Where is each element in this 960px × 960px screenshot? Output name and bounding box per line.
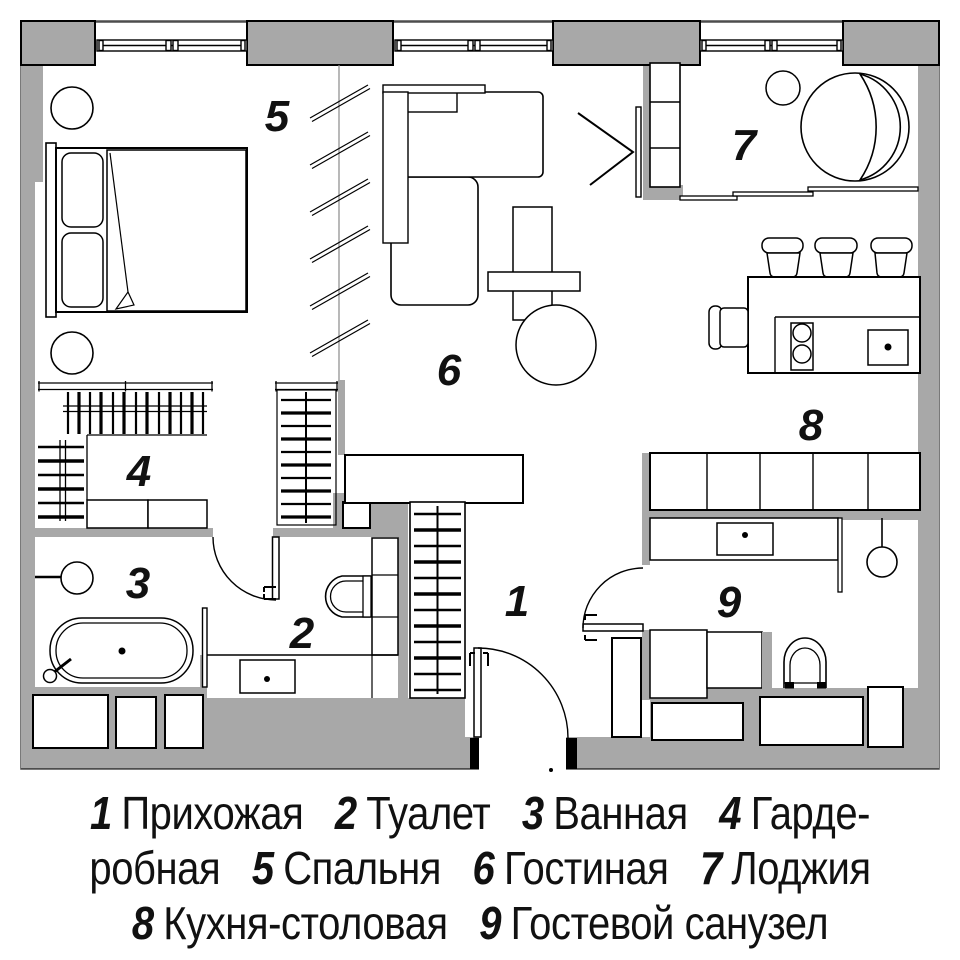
pier-middle-right [553,21,700,65]
bathroom [35,562,207,687]
room-label-4: 4 [126,447,151,496]
wardrobe-dresser-1 [87,500,148,528]
wall-entry-right [566,737,650,768]
legend-line-2: робная 5Спальня 6Гостиная 7Лоджия [62,841,897,896]
wall-kitchen-9-upper [642,453,650,565]
bathroom-door-leaf [273,537,280,599]
window-living [395,40,553,51]
round-basin [61,562,93,594]
bed-pillow-top [62,153,103,227]
bathtub-drain [119,648,126,655]
legend-room-name: Спальня [283,842,441,894]
bath-wc-partition [203,608,208,687]
legend-item: 1Прихожая [90,786,303,841]
partition-hatches [310,85,370,357]
vanity-drain [742,532,748,538]
kitchen-counter-row [650,453,920,510]
loggia-sliding-door [680,187,918,200]
bar-stool-back-1 [762,238,803,253]
wardrobe-clothes-left [38,447,84,517]
wall-bottom-under-wc [207,698,398,768]
window-bedroom [97,40,247,51]
legend-number: 9 [479,897,501,949]
wall-bottom-under-closet [398,698,465,768]
guest-bathroom [650,518,897,698]
wall-bath-top [21,528,213,537]
floor-plan-drawing: 1 2 3 4 5 6 7 8 9 [0,0,960,775]
bathroom-door-arc [213,537,276,600]
tv-panel [636,107,641,197]
floor-plan-page: { "colors": { "wall_gray": "#a8a8a8", "l… [0,0,960,960]
legend-item: 3Ванная [522,786,688,841]
duct-box [343,502,370,528]
legend-item: 6Гостиная [473,841,669,896]
storage-box-6 [868,687,903,747]
entry-jamb-left [470,738,479,769]
storage-box-3 [165,695,203,748]
bathtub-tap [44,670,57,683]
room-label-9: 9 [717,578,742,627]
wardrobe-clothes-top [68,392,203,434]
pier-corner-left [21,21,95,65]
pier-corner-right [843,21,939,65]
storage-box-4 [652,703,743,740]
closet-rack-hall [410,502,465,698]
pier-middle-left [247,21,393,65]
legend-room-name: Ванная [553,787,687,839]
sofa-arm [383,92,408,243]
legend-line-1: 1Прихожая 2Туалет 3Ванная 4Гарде- [62,786,897,841]
legend: 1Прихожая 2Туалет 3Ванная 4Гарде- робная… [0,786,960,951]
shower-head [867,547,897,577]
bed-headboard [46,143,56,317]
room-label-6: 6 [437,346,462,395]
storage-box-2 [116,697,156,748]
room-label-8: 8 [799,401,824,450]
bed-pillow-bottom [62,233,103,307]
wc-sink-drain [264,676,270,682]
wardrobe-dresser-2 [148,500,207,528]
room-label-2: 2 [289,609,315,658]
legend-item: 8Кухня-столовая [132,896,448,951]
bar-stool-3 [875,253,907,277]
storage-box-5 [760,697,863,745]
legend-room-name: Гостиная [504,842,668,894]
legend-room-name: Прихожая [121,787,303,839]
bar-stool-2 [820,253,853,277]
legend-item: 5Спальня [252,841,441,896]
guest-cabinet-2 [707,632,762,688]
room-label-3: 3 [126,559,150,608]
guest-door-arc [583,568,643,628]
wall-closet-left [398,502,408,698]
guest-wall-stub [762,632,772,690]
bedroom [46,65,339,380]
burner-1 [793,324,811,342]
legend-room-name: Лоджия [731,842,870,894]
console-table [345,455,523,503]
legend-room-name: робная [89,842,220,894]
legend-item: 7Лоджия [700,841,871,896]
tv-direction-arrow [578,113,633,185]
room-label-7: 7 [732,121,759,170]
kitchen-sink-drain [885,344,891,350]
bar-stool-1 [767,253,800,277]
legend-number: 5 [252,842,274,894]
bar-stool-back-3 [871,238,912,253]
entry-door-leaf [474,648,481,737]
guest-bathroom-door [583,568,643,640]
legend-number: 1 [90,787,112,839]
bathroom-door [213,537,279,600]
wall-bedroom-hall [338,380,345,455]
shower-partition [838,518,842,592]
wall-loggia-left [643,65,650,195]
legend-number: 8 [132,897,154,949]
loggia [650,63,918,200]
wall-wc-top [273,528,333,537]
wardrobe [38,381,213,528]
entry-jamb-right [566,738,577,769]
wall-kitchen-9-lower [642,630,650,700]
entry-door [470,648,568,738]
pouf [516,305,596,385]
loggia-shelf-unit [650,63,680,187]
entry-door-arc [478,648,568,738]
legend-number: 3 [522,787,544,839]
island-chair [720,308,748,347]
burner-2 [793,345,811,363]
legend-room-name: Гарде- [751,787,870,839]
legend-room-name: Гостевой санузел [511,897,829,949]
threshold-dot [549,768,553,772]
legend-number: 4 [719,787,741,839]
coffee-table-long [513,207,552,320]
hall-cabinet [612,638,641,737]
legend-item: 4Гарде- [719,786,870,841]
guest-cabinet-1 [650,630,707,698]
nightstand-top [51,87,93,129]
room-label-1: 1 [505,577,529,626]
kitchen [650,238,920,510]
legend-room-name: Туалет [366,787,490,839]
legend-room-name: Кухня-столовая [163,897,447,949]
legend-line-3: 8Кухня-столовая 9Гостевой санузел [62,896,897,951]
nightstand-bottom [51,332,93,374]
window-loggia [700,40,843,51]
legend-number: 6 [473,842,495,894]
vanity-sink [717,523,773,555]
living-room [345,85,641,503]
entry-opening [470,736,577,772]
guest-door-leaf [583,624,643,631]
legend-item: 2Туалет [335,786,490,841]
bar-stool-back-2 [815,238,857,253]
legend-number: 7 [700,842,722,894]
windows [97,40,843,51]
storage-box-1 [33,695,108,748]
legend-item: робная [89,841,220,896]
legend-number: 2 [335,787,357,839]
closet-rack-middle [275,381,338,525]
wall-right [918,65,939,768]
room-label-5: 5 [265,92,290,141]
wc-toilet-tank [363,576,371,617]
legend-item: 9Гостевой санузел [479,896,828,951]
loggia-side-table [766,71,800,105]
coffee-table-cross [488,272,580,291]
wc-shaft [372,538,398,655]
wall-left-lower [21,182,35,688]
